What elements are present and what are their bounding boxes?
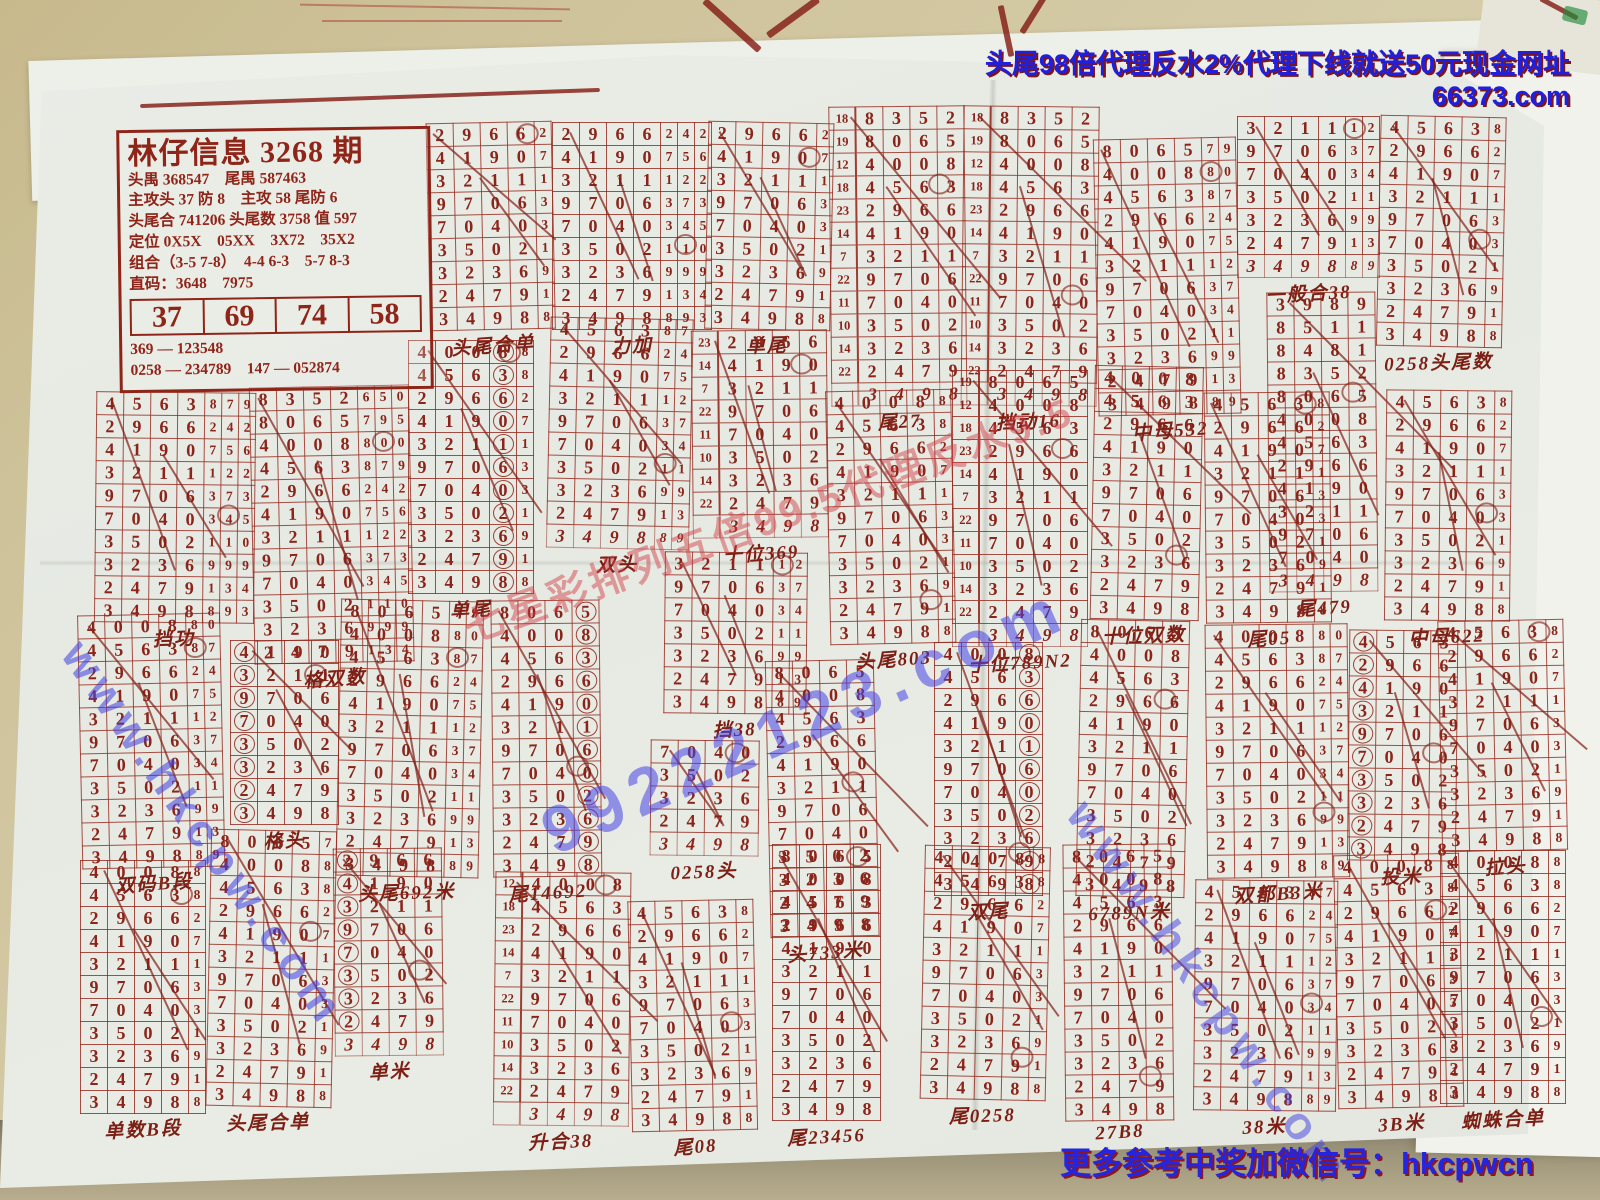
number-grid: 1883521980651240081845632329661441907321… — [828, 105, 967, 434]
number-grid: 4008456329664190321197067040350232362479… — [1089, 365, 1204, 649]
red-scribble — [1019, 0, 1046, 34]
number-grid: 296641903211970670403502323624793498单米 — [333, 847, 444, 1084]
number-grid: 4563829662419073211197063704033502132369… — [1204, 391, 1333, 651]
photo-of-lottery-sheet: 林仔信息 3268 期 头禺 368547 尾禺 587463 主攻头 37 防… — [0, 0, 1600, 1200]
sheet-title: 林仔信息 3268 期 — [127, 135, 419, 171]
number-grid: 3211129706377040343502113236992479133498… — [1237, 116, 1380, 306]
number-grid: 4563829662419073211197063704033502132369… — [627, 899, 758, 1161]
grid-footer-label: 头尾合单 — [205, 1106, 332, 1137]
number-grid: 4563829662419073211197063704033502132369… — [1384, 389, 1513, 649]
info-box: 林仔信息 3268 期 头禺 368547 尾禺 587463 主攻头 37 防… — [116, 126, 434, 393]
grid-footer-label: 0258头尾数 — [1375, 346, 1502, 377]
grid-footer-label: 尾23456 — [771, 1119, 881, 1152]
number-grid: 4008845638296624190732111970637040335021… — [919, 845, 1051, 1130]
number-grid: 8065400845632966419032119706704035023236… — [772, 844, 881, 1149]
grid-footer-label: 升合38 — [492, 1124, 629, 1157]
big-number: 37 — [132, 300, 205, 334]
big-number: 58 — [349, 297, 420, 331]
grid-footer-label: 0258头 — [649, 855, 759, 887]
red-scribble — [766, 0, 820, 39]
red-line — [300, 4, 570, 11]
number-grid: 2966241907321119706370403350213236924791… — [704, 121, 835, 360]
number-grid: 4008845638296624190732111970637040335021… — [1440, 850, 1566, 1132]
number-grid: 41903211970670403502323624793498格头 — [230, 640, 339, 853]
number-grid: 8065400845632966419032119706704035023236… — [490, 599, 602, 905]
info-line: 直码：3648 7975 — [129, 271, 421, 296]
ad-text-bottom: 更多参考中奖加微信号：hkcpwcn — [1060, 1138, 1580, 1183]
number-grid: 4008804563872966244190753211129706377040… — [1205, 623, 1351, 906]
info-line: 0258 — 234789 147 — 052874 — [130, 357, 422, 382]
number-grid: 2966241907321119706370403350213236924791… — [426, 121, 557, 360]
grid-footer-label: 尾0258 — [919, 1099, 1046, 1130]
recommended-numbers-row: 37 69 74 58 — [130, 295, 422, 336]
number-grid: 4563829662419073211197063704033502132369… — [1437, 619, 1568, 881]
number-grid: 1240081845632329661441907321122970611704… — [493, 871, 632, 1154]
number-grid: 4563829662419073211197063704033502132369… — [1375, 115, 1506, 377]
grid-footer-label: 蜘蛛合单 — [1439, 1102, 1566, 1136]
big-number: 74 — [277, 298, 350, 332]
ad-text-top: 头尾98倍代理反水2%代理下线就送50元现金网址66373.com — [890, 42, 1570, 112]
grid-footer-label: 单米 — [334, 1054, 444, 1088]
grid-footer-label: 单数B段 — [79, 1112, 206, 1146]
number-grid: 4008845638296624190732111970637040335021… — [80, 860, 206, 1142]
red-line — [322, 20, 562, 22]
big-number: 69 — [204, 299, 277, 333]
